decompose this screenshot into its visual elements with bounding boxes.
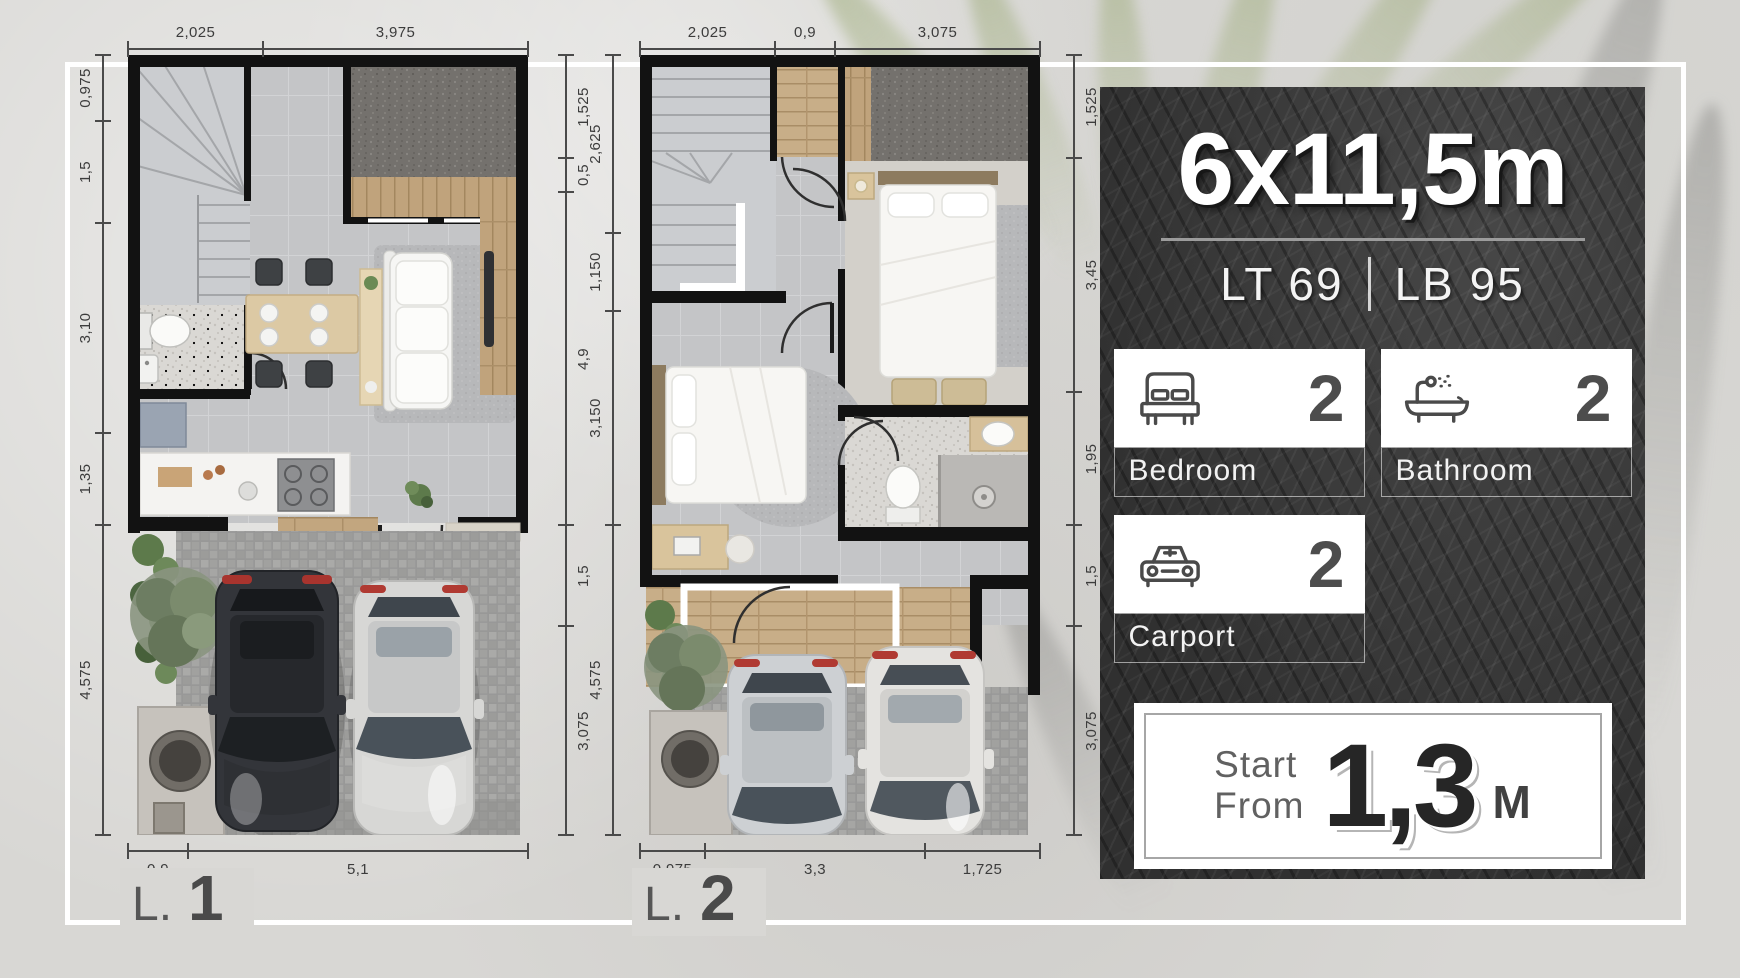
plan2-car-white — [858, 647, 994, 835]
dimension-segment: 4,575 — [60, 525, 104, 835]
dimension-value: 3,3 — [804, 861, 826, 878]
carport-label: Carport — [1114, 613, 1365, 663]
dimension-value: 1,35 — [77, 464, 94, 495]
price-unit: M — [1493, 775, 1531, 829]
bathroom-feature: 2 Bathroom — [1381, 349, 1632, 497]
plan1-back-patio — [343, 61, 522, 224]
dimension-value: 1,5 — [77, 161, 94, 183]
bathroom-count: 2 — [1575, 360, 1612, 436]
lot-area-value: LT 69 — [1220, 257, 1343, 311]
dimension-value: 4,575 — [77, 660, 94, 700]
dimension-segment: 0,9 — [775, 20, 835, 50]
dimension-value: 1,5 — [1083, 565, 1100, 587]
title-divider — [1161, 238, 1585, 241]
dimension-value: 3,45 — [1083, 260, 1100, 291]
plan1-carport — [130, 531, 520, 835]
dimension-value: 3,975 — [376, 24, 416, 41]
spec-panel: 6x11,5m LT 69 LB 95 — [1100, 87, 1645, 879]
floor-1-label: L. 1 — [120, 868, 254, 936]
floor-plan-2-rendering — [640, 55, 1040, 835]
separator-bar — [1368, 257, 1371, 311]
price-content: Start From 1,3 M — [1214, 733, 1531, 839]
bedroom-feature: 2 Bedroom — [1114, 349, 1365, 497]
bathroom-label: Bathroom — [1381, 447, 1632, 497]
dimension-value: 3,150 — [587, 398, 604, 438]
floor-2-label: L. 2 — [632, 868, 766, 936]
dimension-value: 2,025 — [688, 24, 728, 41]
price-box: Start From 1,3 M — [1134, 703, 1612, 869]
dimension-value: 0,9 — [794, 24, 816, 41]
carport-count: 2 — [1308, 526, 1345, 602]
dimension-segment: 3,075 — [835, 20, 1040, 50]
floor-2-label-number: 2 — [700, 870, 736, 928]
plan1-staircase — [134, 61, 250, 305]
bedroom-label: Bedroom — [1114, 447, 1365, 497]
dimension-segment: 0,975 — [60, 55, 104, 121]
dimension-segment: 1,150 — [570, 233, 614, 311]
dimension-value: 3,075 — [918, 24, 958, 41]
price-value: 1,3 — [1322, 733, 1474, 839]
dimension-segment: 2,625 — [570, 55, 614, 233]
dimension-value: 5,1 — [347, 861, 369, 878]
floor-1-label-number: 1 — [188, 870, 224, 928]
price-prefix-line2: From — [1214, 786, 1304, 827]
car-icon — [1132, 524, 1208, 605]
dimension-segment: 3,150 — [570, 311, 614, 525]
dimension-value: 1,95 — [1083, 443, 1100, 474]
dimension-value: 3,10 — [77, 313, 94, 344]
dimension-segment: 2,025 — [128, 20, 263, 50]
plan1-left-dimension: 0,9751,53,101,354,575 — [60, 55, 102, 835]
plan1-top-dimension: 2,0253,975 — [128, 20, 528, 48]
dimension-segment: 3,10 — [60, 223, 104, 433]
house-size-title: 6x11,5m — [1177, 111, 1567, 228]
carport-card: 2 — [1114, 515, 1365, 613]
plan2-left-dimension: 2,6251,1503,1504,575 — [570, 55, 612, 835]
bedroom-card: 2 — [1114, 349, 1365, 447]
carport-feature: 2 Carport — [1114, 515, 1365, 663]
floor-2-label-prefix: L. — [644, 883, 684, 926]
dimension-value: 1,525 — [1083, 87, 1100, 127]
dimension-value: 2,625 — [587, 124, 604, 164]
plan2-bathroom — [838, 405, 1040, 533]
flyer-page: 2,0253,975 2,0250,93,075 0,9751,53,101,3… — [0, 0, 1740, 978]
bedroom-count: 2 — [1308, 360, 1345, 436]
bed-icon — [1132, 358, 1208, 439]
plan1-car-silver — [346, 581, 484, 835]
bathroom-card: 2 — [1381, 349, 1632, 447]
plan2-staircase — [646, 61, 776, 292]
plan2-car-silver — [720, 655, 854, 835]
dimension-segment: 3,975 — [263, 20, 528, 50]
dimension-segment: 4,575 — [570, 525, 614, 835]
dimension-value: 2,025 — [176, 24, 216, 41]
floor-plan-1-rendering — [128, 55, 528, 835]
lot-building-row: LT 69 LB 95 — [1220, 257, 1525, 311]
building-area-value: LB 95 — [1395, 257, 1525, 311]
dimension-value: 1,150 — [587, 252, 604, 292]
price-prefix-line1: Start — [1214, 745, 1304, 786]
floor-1-label-prefix: L. — [132, 883, 172, 926]
dimension-segment: 1,725 — [925, 850, 1040, 882]
feature-grid: 2 Bedroom 2 — [1114, 349, 1632, 663]
dimension-value: 4,575 — [587, 660, 604, 700]
dimension-value: 1,725 — [963, 861, 1003, 878]
bathtub-icon — [1399, 358, 1475, 439]
price-prefix: Start From — [1214, 745, 1304, 826]
plan1-car-dark — [208, 570, 346, 835]
dimension-value: 0,975 — [77, 68, 94, 108]
plan2-top-dimension: 2,0250,93,075 — [640, 20, 1040, 48]
dimension-segment: 1,5 — [60, 121, 104, 223]
plan2-bedroom-2 — [845, 161, 1028, 405]
dimension-segment: 1,35 — [60, 433, 104, 525]
dimension-value: 3,075 — [1083, 711, 1100, 751]
dimension-segment: 2,025 — [640, 20, 775, 50]
